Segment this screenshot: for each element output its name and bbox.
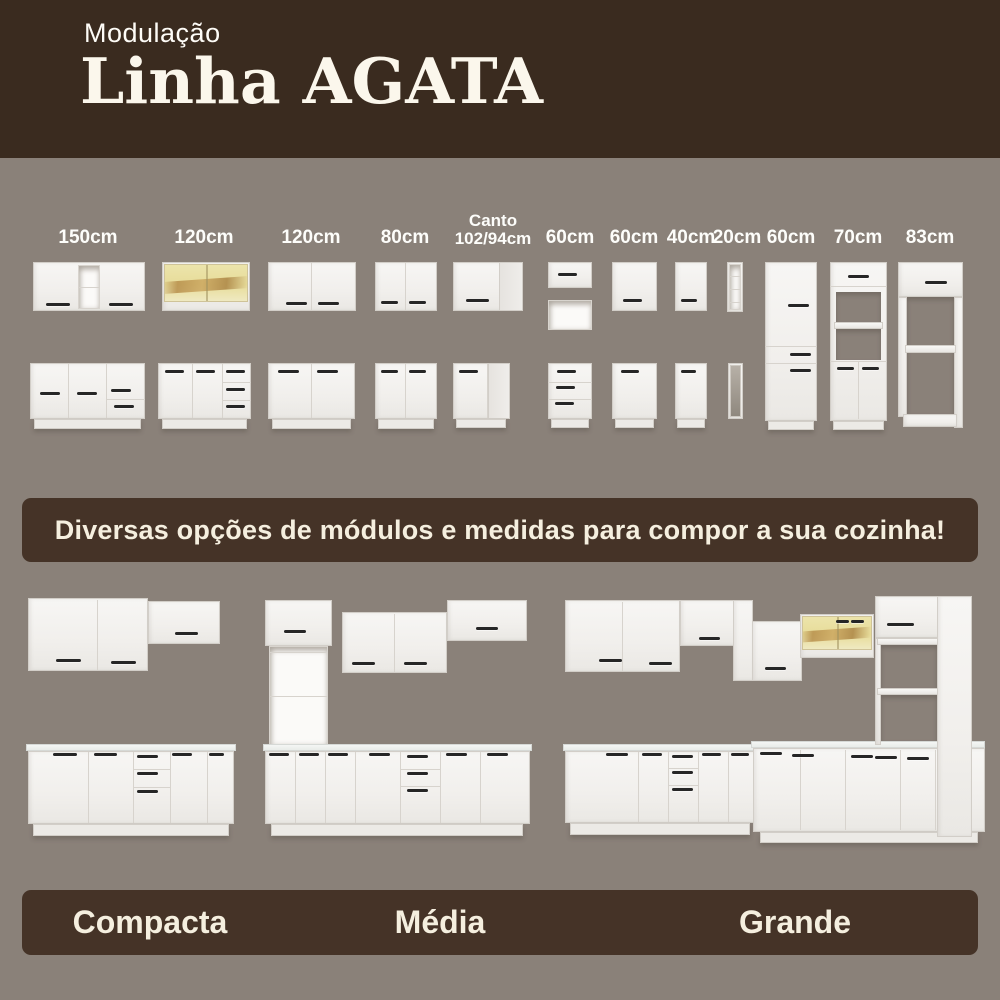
cabinet-divider — [845, 750, 846, 830]
countertop — [563, 744, 755, 751]
cabinet-handle — [792, 754, 814, 757]
cabinet-handle — [836, 620, 849, 623]
shelf — [877, 638, 939, 645]
cabinet-handle — [765, 667, 786, 670]
cabinet-divider — [622, 602, 623, 671]
frame-opening — [881, 645, 937, 688]
cabinet-body — [937, 596, 972, 837]
cabinet-divider — [935, 750, 936, 830]
cabinet-divider — [668, 768, 698, 769]
cabinet-handle — [672, 771, 693, 774]
shelf — [877, 688, 939, 695]
cabinet-handle — [851, 620, 864, 623]
cabinet-divider — [900, 750, 901, 830]
cabinet-handle — [907, 757, 929, 760]
cabinet-handle — [599, 659, 622, 662]
cabinet-handle — [649, 662, 672, 665]
cabinet-divider — [668, 785, 698, 786]
plinth — [570, 823, 750, 835]
cabinet-handle — [875, 756, 897, 759]
cabinet-divider — [638, 752, 639, 822]
catalog-poster: Modulação Linha AGATA 150cm 120cm 120cm … — [0, 0, 1000, 1000]
cabinet-handle — [731, 753, 749, 756]
cabinet-handle — [699, 637, 720, 640]
cabinet-divider — [728, 752, 729, 822]
cabinet-handle — [760, 752, 782, 755]
cabinet-handle — [702, 753, 721, 756]
cabinet-handle — [672, 755, 693, 758]
kitchen-label-compacta: Compacta — [73, 890, 228, 955]
cabinet-handle — [851, 755, 873, 758]
cabinet-divider — [668, 752, 669, 822]
kitchen-label-media: Média — [395, 890, 486, 955]
cabinet-handle — [642, 753, 662, 756]
cabinet-handle — [672, 788, 693, 791]
kitchen-grande-illustration — [0, 0, 1000, 1000]
cabinet-body — [752, 621, 802, 681]
cabinet-body — [565, 751, 755, 823]
cabinet-divider — [698, 752, 699, 822]
frame-opening — [881, 695, 937, 741]
cabinet-body — [733, 600, 753, 681]
cabinet-handle — [606, 753, 628, 756]
cabinet-handle — [887, 623, 914, 626]
footer: Compacta Média Grande — [22, 890, 978, 955]
cabinet-divider — [800, 750, 801, 830]
kitchen-label-grande: Grande — [739, 890, 851, 955]
